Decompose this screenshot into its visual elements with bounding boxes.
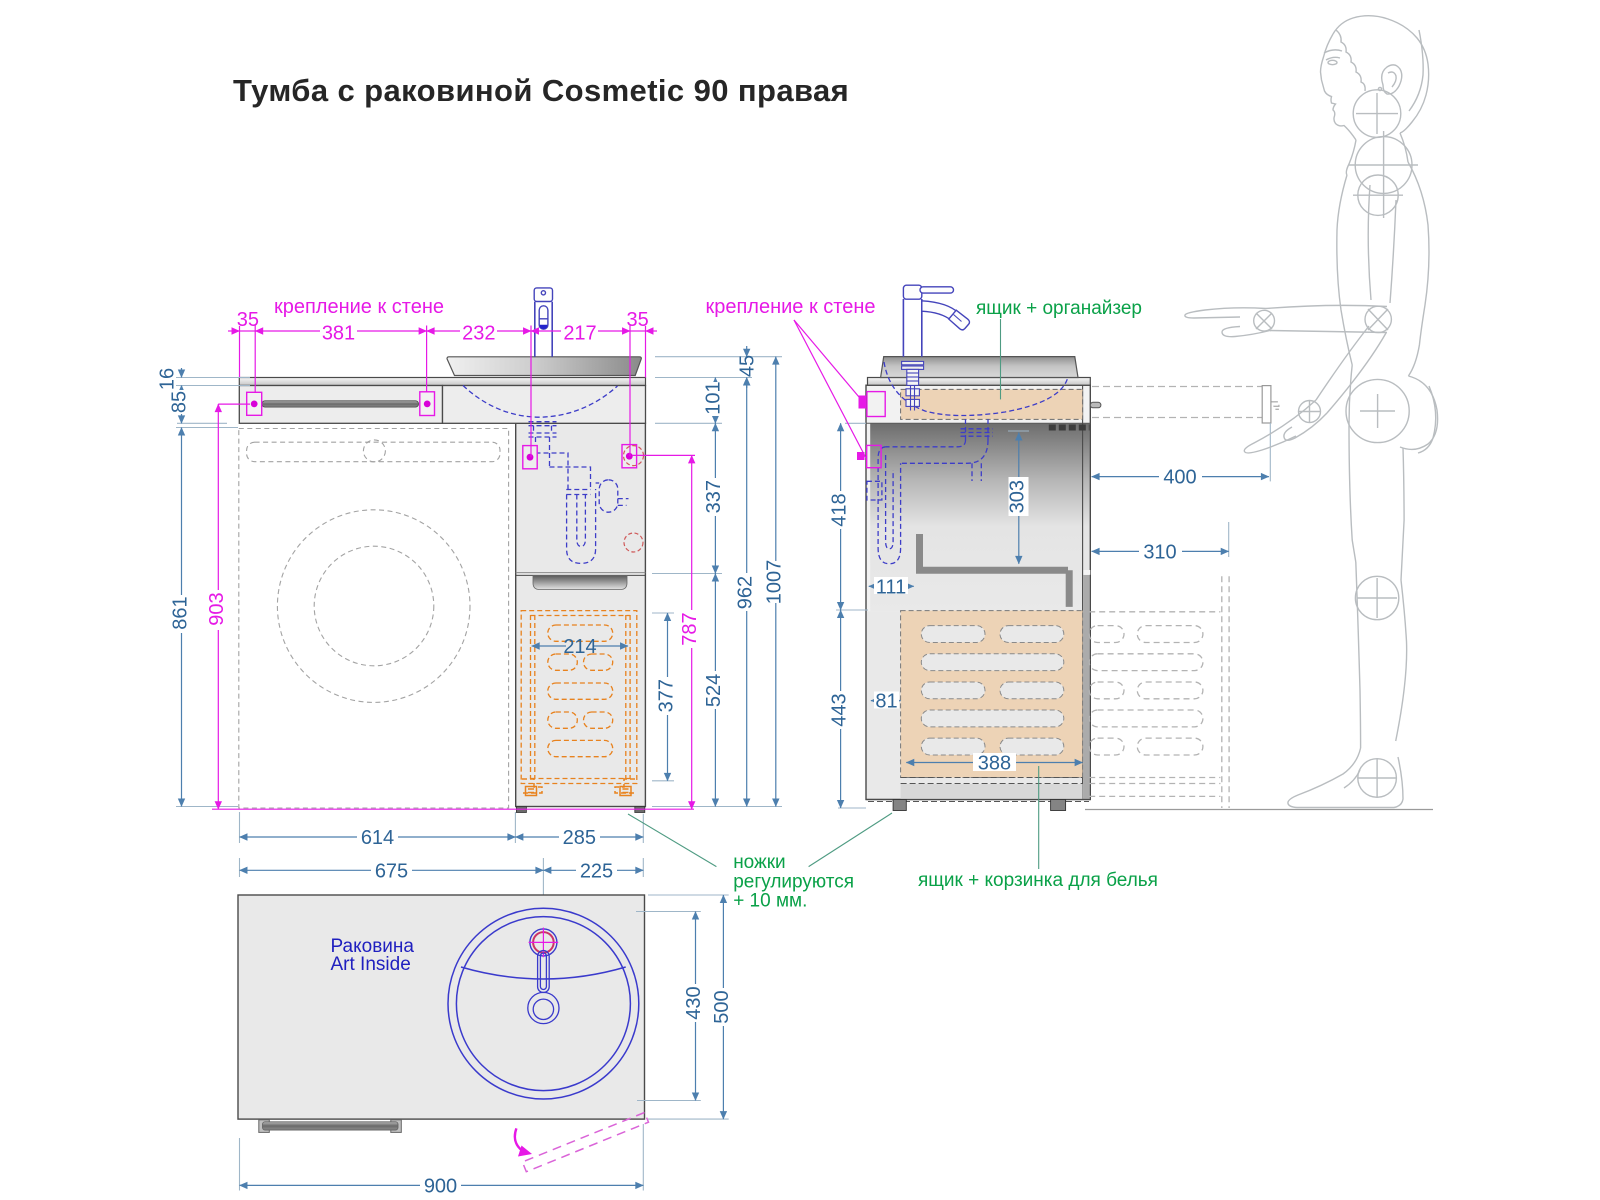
svg-text:регулируются: регулируются	[733, 872, 854, 893]
svg-text:310: 310	[1143, 541, 1176, 563]
svg-text:303: 303	[1006, 480, 1028, 513]
svg-text:225: 225	[580, 860, 613, 882]
svg-text:1007: 1007	[763, 560, 785, 605]
svg-text:крепление к стене: крепление к стене	[274, 296, 444, 318]
svg-text:ящик + корзинка для белья: ящик + корзинка для белья	[918, 870, 1158, 891]
svg-text:крепление к стене: крепление к стене	[705, 296, 875, 318]
svg-text:232: 232	[462, 323, 495, 345]
svg-text:675: 675	[375, 860, 408, 882]
svg-text:500: 500	[711, 990, 733, 1023]
svg-text:Art Inside: Art Inside	[331, 954, 411, 975]
svg-text:ножки: ножки	[733, 852, 785, 873]
svg-text:214: 214	[563, 636, 596, 658]
svg-text:614: 614	[361, 827, 394, 849]
svg-text:285: 285	[563, 827, 596, 849]
svg-text:45: 45	[736, 355, 758, 377]
svg-text:81: 81	[875, 691, 897, 713]
svg-text:377: 377	[655, 679, 677, 712]
svg-text:381: 381	[322, 323, 355, 345]
svg-text:337: 337	[703, 480, 725, 513]
svg-text:430: 430	[683, 986, 705, 1019]
svg-text:ящик + органайзер: ящик + органайзер	[976, 298, 1142, 319]
svg-text:Тумба с раковиной Cosmetic 90: Тумба с раковиной Cosmetic 90 правая	[233, 73, 849, 108]
svg-text:217: 217	[563, 323, 596, 345]
svg-text:787: 787	[679, 612, 701, 645]
svg-text:903: 903	[206, 592, 228, 625]
svg-text:400: 400	[1163, 467, 1196, 489]
svg-text:+ 10 мм.: + 10 мм.	[733, 891, 807, 912]
svg-text:35: 35	[626, 309, 648, 331]
svg-text:418: 418	[828, 493, 850, 526]
svg-text:388: 388	[978, 753, 1011, 775]
svg-text:101: 101	[703, 381, 725, 414]
svg-text:85: 85	[168, 391, 190, 413]
svg-text:524: 524	[703, 674, 725, 707]
svg-text:443: 443	[828, 693, 850, 726]
svg-text:16: 16	[156, 368, 178, 390]
svg-text:900: 900	[424, 1175, 457, 1197]
svg-text:861: 861	[169, 596, 191, 629]
svg-text:111: 111	[876, 576, 906, 598]
svg-text:962: 962	[734, 576, 756, 609]
svg-text:35: 35	[237, 309, 259, 331]
